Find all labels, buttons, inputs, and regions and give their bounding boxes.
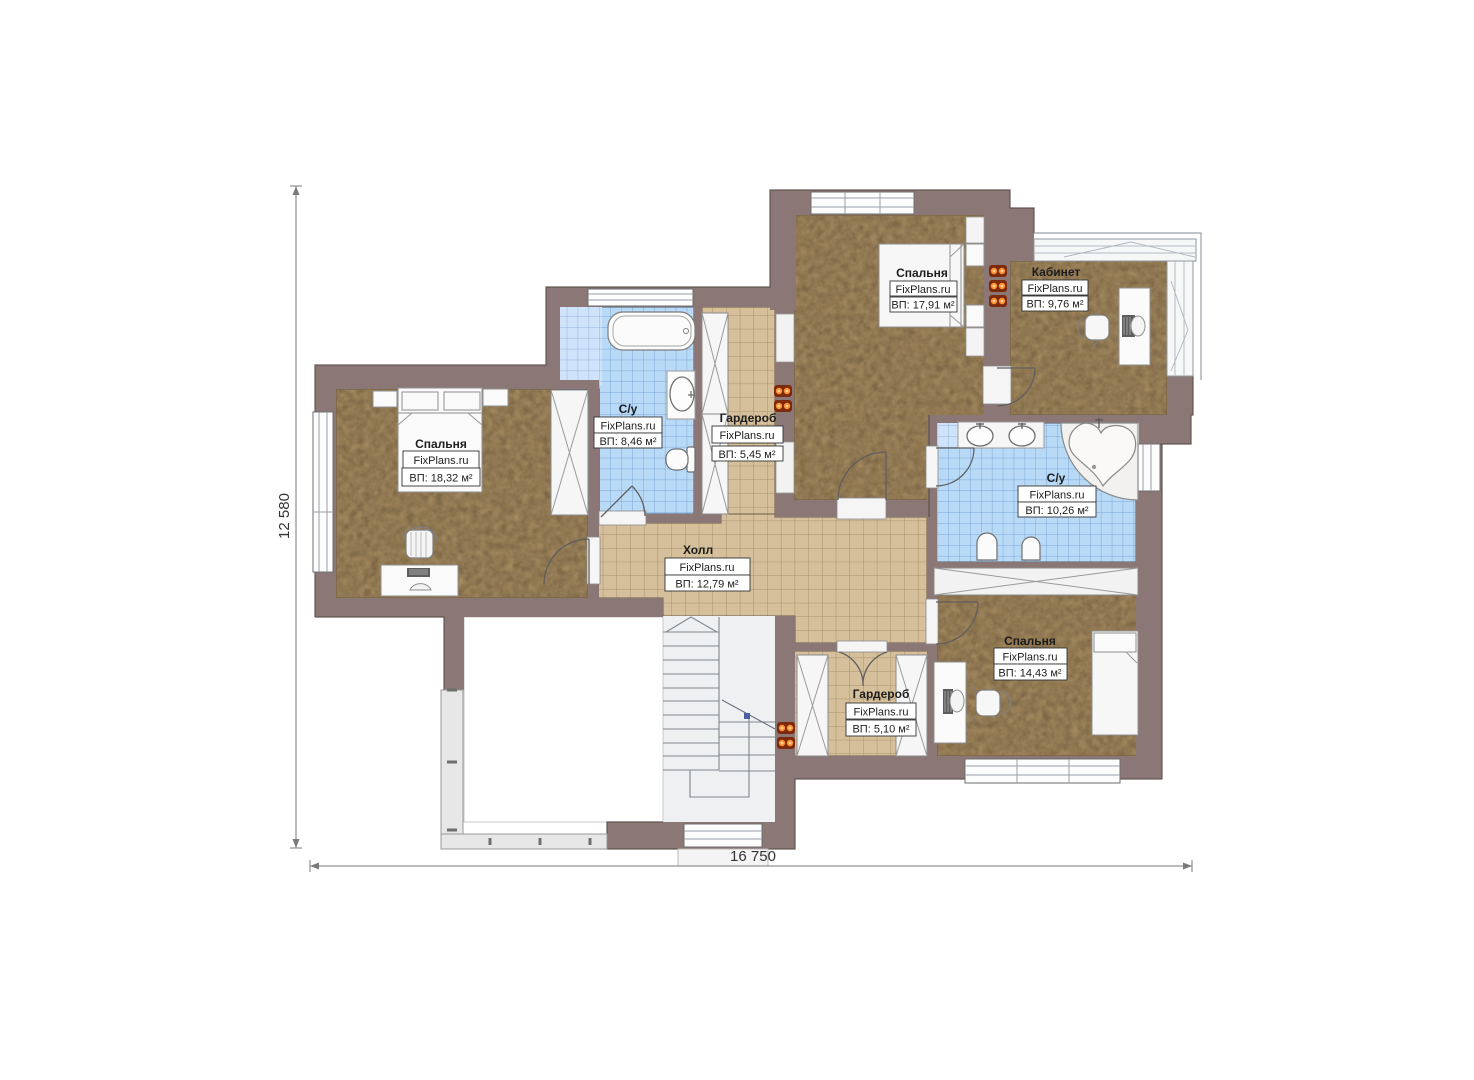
svg-text:FixPlans.ru: FixPlans.ru (413, 455, 468, 467)
svg-text:FixPlans.ru: FixPlans.ru (1029, 490, 1084, 502)
svg-text:Спальня: Спальня (415, 437, 467, 451)
svg-text:ВП: 14,43 м²: ВП: 14,43 м² (998, 668, 1062, 680)
svg-text:С/у: С/у (1047, 471, 1066, 485)
svg-text:ВП: 12,79 м²: ВП: 12,79 м² (675, 579, 739, 591)
svg-text:16 750: 16 750 (730, 848, 776, 865)
svg-text:Гардероб: Гардероб (720, 411, 777, 425)
svg-text:FixPlans.ru: FixPlans.ru (853, 707, 908, 719)
svg-text:FixPlans.ru: FixPlans.ru (895, 284, 950, 296)
svg-text:ВП: 18,32 м²: ВП: 18,32 м² (409, 473, 473, 485)
svg-text:12 580: 12 580 (276, 493, 293, 539)
svg-text:FixPlans.ru: FixPlans.ru (1027, 283, 1082, 295)
svg-text:Спальня: Спальня (1004, 634, 1056, 648)
svg-text:Спальня: Спальня (896, 266, 948, 280)
svg-text:Гардероб: Гардероб (853, 687, 910, 701)
svg-text:ВП: 5,45 м²: ВП: 5,45 м² (718, 449, 775, 461)
svg-text:FixPlans.ru: FixPlans.ru (1002, 652, 1057, 664)
svg-text:ВП: 10,26 м²: ВП: 10,26 м² (1025, 505, 1089, 517)
svg-text:FixPlans.ru: FixPlans.ru (679, 562, 734, 574)
svg-text:Кабинет: Кабинет (1032, 265, 1081, 279)
svg-text:ВП: 17,91 м²: ВП: 17,91 м² (891, 300, 955, 312)
svg-text:FixPlans.ru: FixPlans.ru (600, 421, 655, 433)
svg-text:ВП: 8,46 м²: ВП: 8,46 м² (599, 436, 656, 448)
svg-text:С/у: С/у (619, 402, 638, 416)
svg-text:ВП: 9,76 м²: ВП: 9,76 м² (1026, 299, 1083, 311)
svg-text:FixPlans.ru: FixPlans.ru (719, 430, 774, 442)
svg-text:Холл: Холл (683, 543, 713, 557)
svg-text:ВП: 5,10 м²: ВП: 5,10 м² (852, 724, 909, 736)
